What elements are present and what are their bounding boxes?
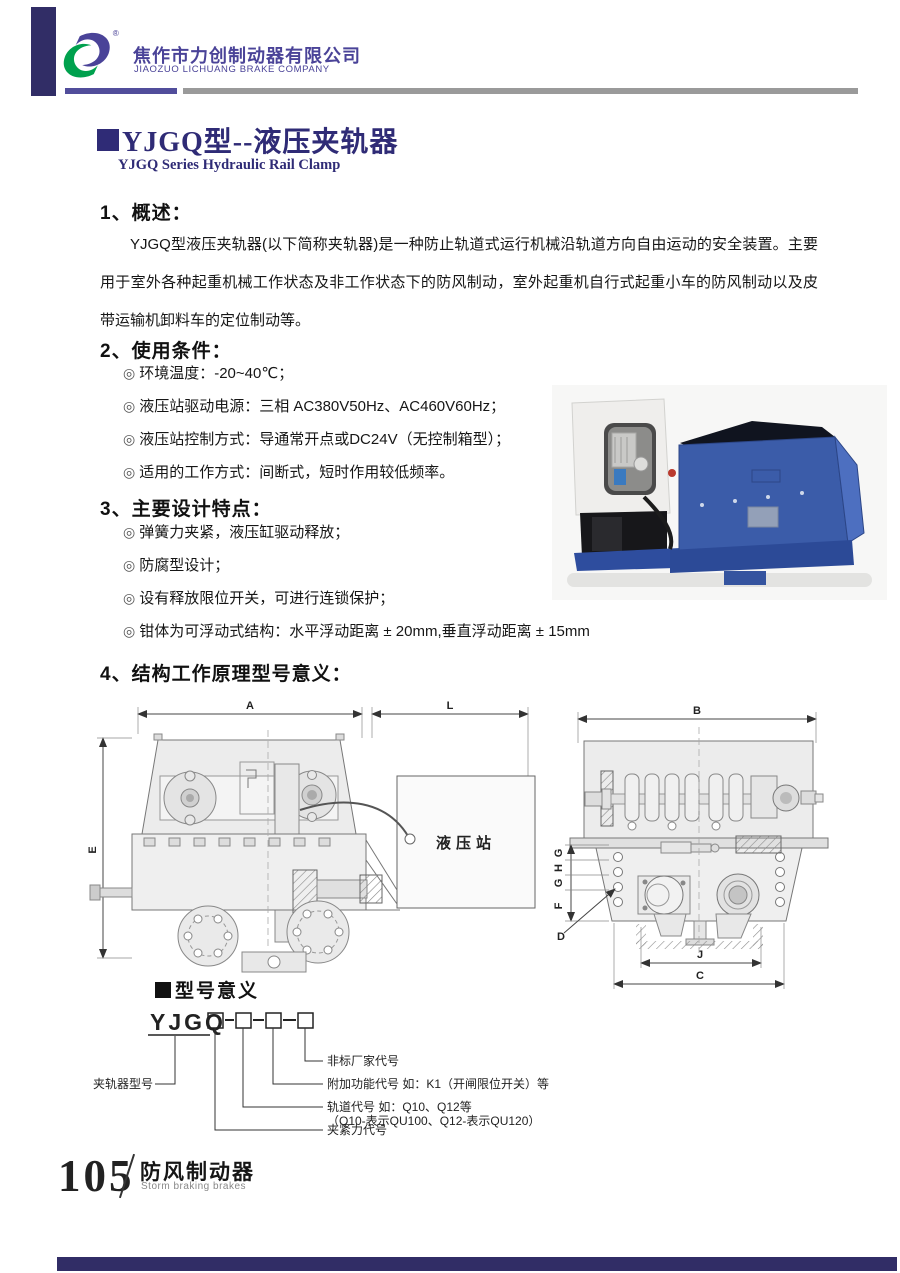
- bullet-icon: ◎: [123, 365, 135, 382]
- list-item-text: 设有释放限位开关，可进行连锁保护；: [139, 587, 394, 608]
- header-rule-gray: [183, 88, 858, 94]
- label-nonstandard-code: 非标厂家代号: [327, 1053, 399, 1068]
- page-subtitle: YJGQ Series Hydraulic Rail Clamp: [118, 157, 340, 174]
- catalog-page: ® 焦作市力创制动器有限公司 JIAOZUO LICHUANG BRAKE CO…: [0, 0, 900, 1273]
- list-item-text: 适用的工作方式：间断式，短时作用较低频率。: [139, 461, 454, 482]
- page-title-text: YJGQ型--液压夹轨器: [122, 120, 398, 160]
- heading-square-icon: [155, 982, 171, 998]
- header-rule-purple: [65, 88, 177, 94]
- conditions-list: ◎ 环境温度：-20~40℃； ◎ 液压站驱动电源：三相 AC380V50Hz、…: [123, 362, 510, 494]
- dim-label-d: D: [557, 931, 565, 943]
- model-code-box-3: [266, 1013, 281, 1028]
- dim-label-g: G: [553, 849, 565, 858]
- list-item: ◎ 钳体为可浮动式结构：水平浮动距离 ± 20mm,垂直浮动距离 ± 15mm: [123, 620, 590, 653]
- dim-label-e: E: [88, 846, 99, 853]
- features-list: ◎ 弹簧力夹紧，液压缸驱动释放； ◎ 防腐型设计； ◎ 设有释放限位开关，可进行…: [123, 521, 590, 653]
- list-item: ◎ 适用的工作方式：间断式，短时作用较低频率。: [123, 461, 510, 494]
- bottom-accent-bar: [57, 1257, 897, 1271]
- list-item-text: 液压站控制方式：导通常开点或DC24V（无控制箱型）；: [139, 428, 510, 449]
- front-view-drawing: B: [545, 695, 875, 1005]
- section-1-heading: 1、概述：: [100, 198, 192, 225]
- model-meaning-heading: 型号意义: [155, 976, 259, 1003]
- section-4-heading: 4、结构工作原理型号意义：: [100, 659, 352, 686]
- company-logo-icon: ®: [55, 26, 121, 86]
- footer-category-en: Storm braking brakes: [141, 1181, 246, 1192]
- dim-label-h: H: [553, 864, 565, 872]
- title-square-icon: [97, 129, 119, 151]
- dim-label-f: F: [553, 902, 565, 909]
- logo-green-swoosh: [64, 44, 98, 78]
- label-rail-code: 轨道代号 如：Q10、Q12等: [327, 1099, 472, 1114]
- page-number: 105: [58, 1150, 135, 1202]
- model-code-diagram: YJGQ 非标厂家代号 附加功能代号 如：K1（开闸限位开关）等 轨道代号 如：…: [55, 1000, 575, 1150]
- list-item-text: 防腐型设计；: [139, 554, 229, 575]
- dim-label-c: C: [696, 970, 704, 982]
- page-title: YJGQ型--液压夹轨器: [97, 120, 398, 160]
- bullet-icon: ◎: [123, 431, 135, 448]
- bullet-icon: ◎: [123, 590, 135, 607]
- label-clamp-model: 夹轨器型号: [93, 1077, 153, 1091]
- dim-label-g2: G: [553, 879, 565, 888]
- list-item-text: 弹簧力夹紧，液压缸驱动释放；: [139, 521, 349, 542]
- registered-mark: ®: [113, 29, 119, 38]
- list-item: ◎ 设有释放限位开关，可进行连锁保护；: [123, 587, 590, 620]
- bullet-icon: ◎: [123, 623, 135, 640]
- dim-label-b: B: [693, 705, 701, 717]
- left-accent-bar: [31, 7, 56, 96]
- list-item: ◎ 弹簧力夹紧，液压缸驱动释放；: [123, 521, 590, 554]
- station-label: 液压站: [436, 834, 496, 852]
- model-code-box-4: [298, 1013, 313, 1028]
- list-item-text: 液压站驱动电源：三相 AC380V50Hz、AC460V60Hz；: [139, 395, 505, 416]
- side-view-drawing: A L E: [88, 698, 548, 983]
- model-code-box-2: [236, 1013, 251, 1028]
- logo-purple-swoosh: [76, 33, 110, 67]
- list-item: ◎ 液压站控制方式：导通常开点或DC24V（无控制箱型）；: [123, 428, 510, 461]
- bullet-icon: ◎: [123, 464, 135, 481]
- list-item: ◎ 液压站驱动电源：三相 AC380V50Hz、AC460V60Hz；: [123, 395, 510, 428]
- label-clamp-force-code: 夹紧力代号: [327, 1123, 387, 1137]
- product-photo: [552, 385, 887, 600]
- section-3-heading: 3、主要设计特点：: [100, 494, 272, 521]
- list-item-text: 环境温度：-20~40℃；: [139, 362, 293, 383]
- bullet-icon: ◎: [123, 398, 135, 415]
- label-function-code: 附加功能代号 如：K1（开闸限位开关）等: [327, 1076, 549, 1091]
- overview-paragraph: YJGQ型液压夹轨器(以下简称夹轨器)是一种防止轨道式运行机械沿轨道方向自由运动…: [100, 226, 818, 340]
- list-item-text: 钳体为可浮动式结构：水平浮动距离 ± 20mm,垂直浮动距离 ± 15mm: [139, 620, 590, 641]
- bullet-icon: ◎: [123, 524, 135, 541]
- model-meaning-heading-text: 型号意义: [175, 976, 259, 1003]
- list-item: ◎ 防腐型设计；: [123, 554, 590, 587]
- section-2-heading: 2、使用条件：: [100, 336, 232, 363]
- dim-label-l: L: [447, 700, 454, 712]
- dim-label-j: J: [697, 949, 703, 961]
- list-item: ◎ 环境温度：-20~40℃；: [123, 362, 510, 395]
- bullet-icon: ◎: [123, 557, 135, 574]
- company-name-en: JIAOZUO LICHUANG BRAKE COMPANY: [134, 64, 330, 75]
- dim-label-a: A: [246, 700, 254, 712]
